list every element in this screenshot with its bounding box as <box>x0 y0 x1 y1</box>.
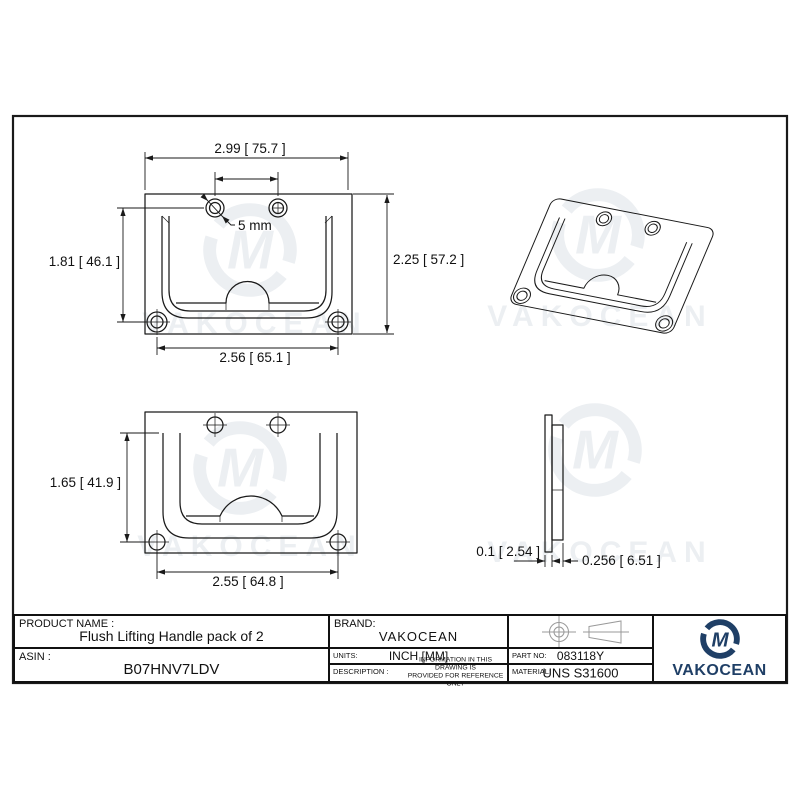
rear-view: 1.65 [ 41.9 ] 2.55 [ 64.8 ] <box>50 412 357 589</box>
logo-wordmark: VAKOCEAN <box>672 662 766 680</box>
front-plate-outline <box>145 194 352 334</box>
dim-front-hole-pitch: 2.56 [ 65.1 ] <box>157 337 338 365</box>
dim-front-height: 2.25 [ 57.2 ] <box>353 194 464 334</box>
dim-rear-height: 1.65 [ 41.9 ] <box>50 433 159 542</box>
svg-text:5 mm: 5 mm <box>238 218 272 233</box>
side-body <box>552 425 563 540</box>
dim-rear-width: 2.55 [ 64.8 ] <box>157 551 338 589</box>
svg-text:1.65 [ 41.9 ]: 1.65 [ 41.9 ] <box>50 475 121 490</box>
product-name-value: Flush Lifting Handle pack of 2 <box>15 628 328 644</box>
description-cell: DESCRIPTION : INFORMATION IN THIS DRAWIN… <box>330 665 507 681</box>
drawing-sheet: M M M M VAKOCEAN VAKOCEAN VAKOCEAN VAKOC… <box>0 0 800 800</box>
part-no-value: 083118Y <box>509 649 652 663</box>
svg-text:0.256 [ 6.51 ]: 0.256 [ 6.51 ] <box>582 553 661 568</box>
side-flange <box>545 415 552 552</box>
projection-symbol-cell <box>509 616 652 647</box>
svg-text:M: M <box>711 628 729 651</box>
front-bottom-hole-right <box>325 309 351 335</box>
svg-text:0.1 [ 2.54 ]: 0.1 [ 2.54 ] <box>476 544 540 559</box>
side-view: 0.1 [ 2.54 ] 0.256 [ 6.51 ] <box>476 415 661 568</box>
vakocean-logo-icon: M <box>698 617 742 661</box>
rear-plate-outline <box>145 412 357 553</box>
title-block: PRODUCT NAME : Flush Lifting Handle pack… <box>13 614 787 683</box>
brand-value: VAKOCEAN <box>330 629 507 644</box>
frame-border <box>13 116 787 683</box>
material-cell: MATERIAL: UNS S31600 <box>509 665 652 681</box>
svg-text:2.25 [ 57.2 ]: 2.25 [ 57.2 ] <box>393 252 464 267</box>
dim-front-width: 2.99 [ 75.7 ] <box>145 141 348 190</box>
description-value: INFORMATION IN THIS DRAWING IS PROVIDED … <box>406 657 505 690</box>
front-top-hole-right <box>269 199 287 217</box>
dim-side-thickness: 0.1 [ 2.54 ] <box>476 544 560 567</box>
asin-value: B07HNV7LDV <box>15 661 328 678</box>
rear-holes <box>145 413 350 554</box>
dim-front-hole-spacing <box>215 172 278 196</box>
description-label: DESCRIPTION : <box>333 667 388 676</box>
asin-cell: ASIN : B07HNV7LDV <box>15 649 328 681</box>
rear-handle-recess <box>163 433 337 538</box>
part-no-cell: PART NO: 083118Y <box>509 649 652 663</box>
brand-cell: BRAND: VAKOCEAN <box>330 616 507 647</box>
product-name-cell: PRODUCT NAME : Flush Lifting Handle pack… <box>15 616 328 647</box>
svg-text:2.55 [ 64.8 ]: 2.55 [ 64.8 ] <box>212 574 283 589</box>
front-bottom-hole-left <box>144 309 170 335</box>
brand-logo: M VAKOCEAN <box>654 616 785 681</box>
svg-text:2.99 [ 75.7 ]: 2.99 [ 75.7 ] <box>214 141 285 156</box>
material-value: UNS S31600 <box>509 666 652 681</box>
front-view: 2.99 [ 75.7 ] 5 mm 2.25 [ 57.2 ] <box>49 141 465 365</box>
dim-front-hole-span: 1.81 [ 46.1 ] <box>49 208 204 322</box>
iso-view <box>508 198 715 335</box>
svg-text:1.81 [ 46.1 ]: 1.81 [ 46.1 ] <box>49 254 120 269</box>
svg-text:2.56 [ 65.1 ]: 2.56 [ 65.1 ] <box>219 350 290 365</box>
third-angle-projection-icon <box>509 616 652 647</box>
dim-side-depth: 0.256 [ 6.51 ] <box>563 543 661 568</box>
